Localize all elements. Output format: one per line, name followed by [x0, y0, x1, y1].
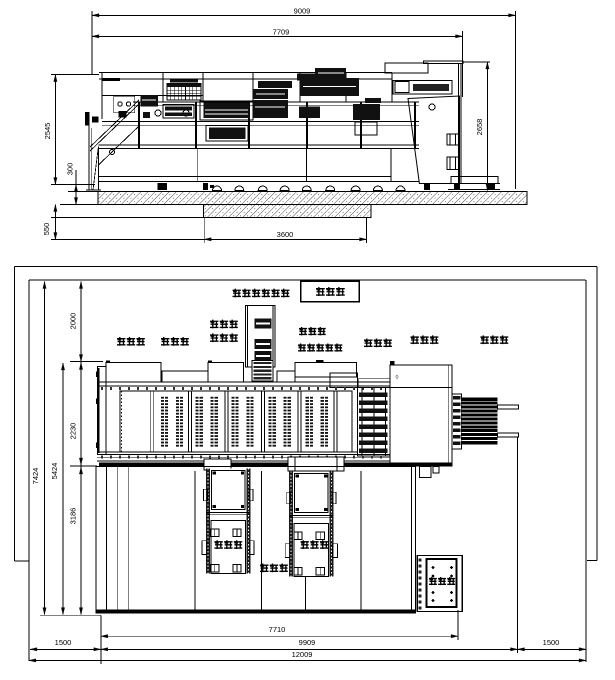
svg-text:550: 550 — [42, 223, 51, 236]
svg-text:7424: 7424 — [31, 468, 40, 485]
svg-text:2658: 2658 — [475, 119, 484, 136]
svg-text:2000: 2000 — [69, 313, 78, 330]
svg-text:2230: 2230 — [69, 423, 78, 440]
svg-text:12009: 12009 — [292, 650, 313, 659]
svg-text:1500: 1500 — [543, 638, 560, 647]
svg-text:2545: 2545 — [43, 123, 52, 140]
svg-text:3600: 3600 — [277, 230, 294, 239]
svg-text:7709: 7709 — [273, 27, 290, 36]
svg-text:5424: 5424 — [50, 463, 59, 480]
svg-text:7710: 7710 — [269, 625, 286, 634]
svg-text:◊: ◊ — [396, 374, 399, 381]
svg-text:1500: 1500 — [55, 638, 72, 647]
svg-text:9909: 9909 — [299, 638, 316, 647]
svg-text:300: 300 — [66, 163, 75, 176]
svg-text:3186: 3186 — [69, 508, 78, 525]
svg-text:9009: 9009 — [294, 6, 311, 15]
